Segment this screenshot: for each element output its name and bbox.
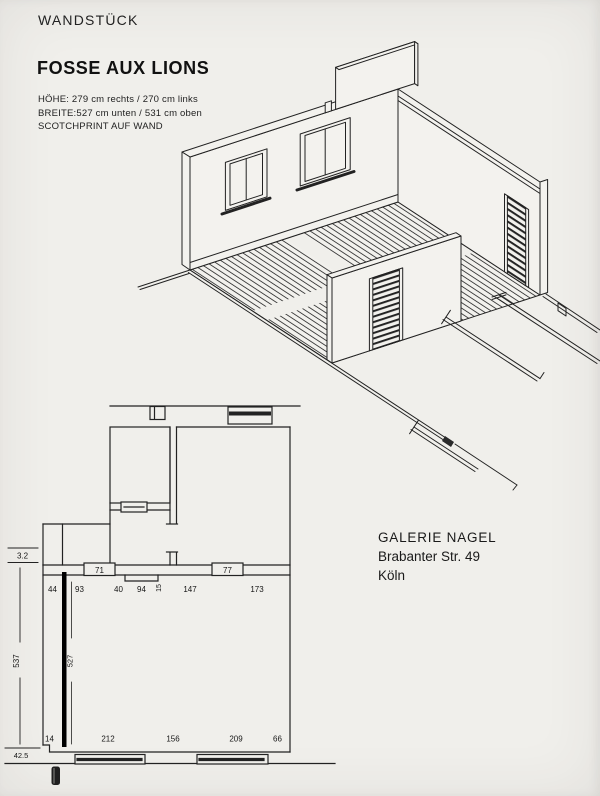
dim-bottom-209: 209	[229, 735, 243, 744]
gallery-city: Köln	[378, 566, 496, 585]
louvered-door-right-wall	[505, 194, 529, 288]
opening-label-77: 77	[223, 566, 232, 575]
floor-plan-drawing: 71 77 44 93 40 94 15 147 173 14 212 156 …	[5, 406, 335, 785]
gallery-address: GALERIE NAGEL Brabanter Str. 49 Köln	[378, 528, 496, 585]
dim-top-94: 94	[137, 585, 146, 594]
isometric-room-drawing	[138, 42, 600, 490]
dim-top-40: 40	[114, 585, 123, 594]
scanned-document-page: WANDSTÜCK FOSSE AUX LIONS HÖHE: 279 cm r…	[0, 0, 600, 796]
dim-artwork-527: 527	[66, 655, 75, 668]
dim-top-44: 44	[48, 585, 57, 594]
dim-top-173: 173	[250, 585, 264, 594]
dim-top-147: 147	[183, 585, 197, 594]
louvered-door-front-wall	[369, 268, 402, 351]
dim-bottom-14: 14	[45, 735, 54, 744]
dim-top-15: 15	[156, 584, 163, 592]
dim-left-42-5: 42.5	[14, 751, 29, 760]
plan-left-dimension-lines	[5, 548, 40, 748]
gallery-name: GALERIE NAGEL	[378, 528, 496, 547]
dim-left-3-2: 3.2	[17, 552, 29, 561]
gallery-street: Brabanter Str. 49	[378, 547, 496, 566]
plan-post	[52, 767, 61, 786]
plan-dimension-labels: 71 77 44 93 40 94 15 147 173 14 212 156 …	[12, 552, 282, 761]
dim-bottom-66: 66	[273, 735, 282, 744]
dim-bottom-156: 156	[166, 735, 180, 744]
dim-bottom-212: 212	[101, 735, 115, 744]
architectural-drawing: 71 77 44 93 40 94 15 147 173 14 212 156 …	[0, 0, 600, 796]
opening-label-71: 71	[95, 566, 104, 575]
dim-left-537: 537	[12, 654, 21, 668]
dim-top-93: 93	[75, 585, 84, 594]
plan-bottom-exterior	[5, 755, 335, 786]
plan-upper-rooms	[43, 406, 300, 752]
